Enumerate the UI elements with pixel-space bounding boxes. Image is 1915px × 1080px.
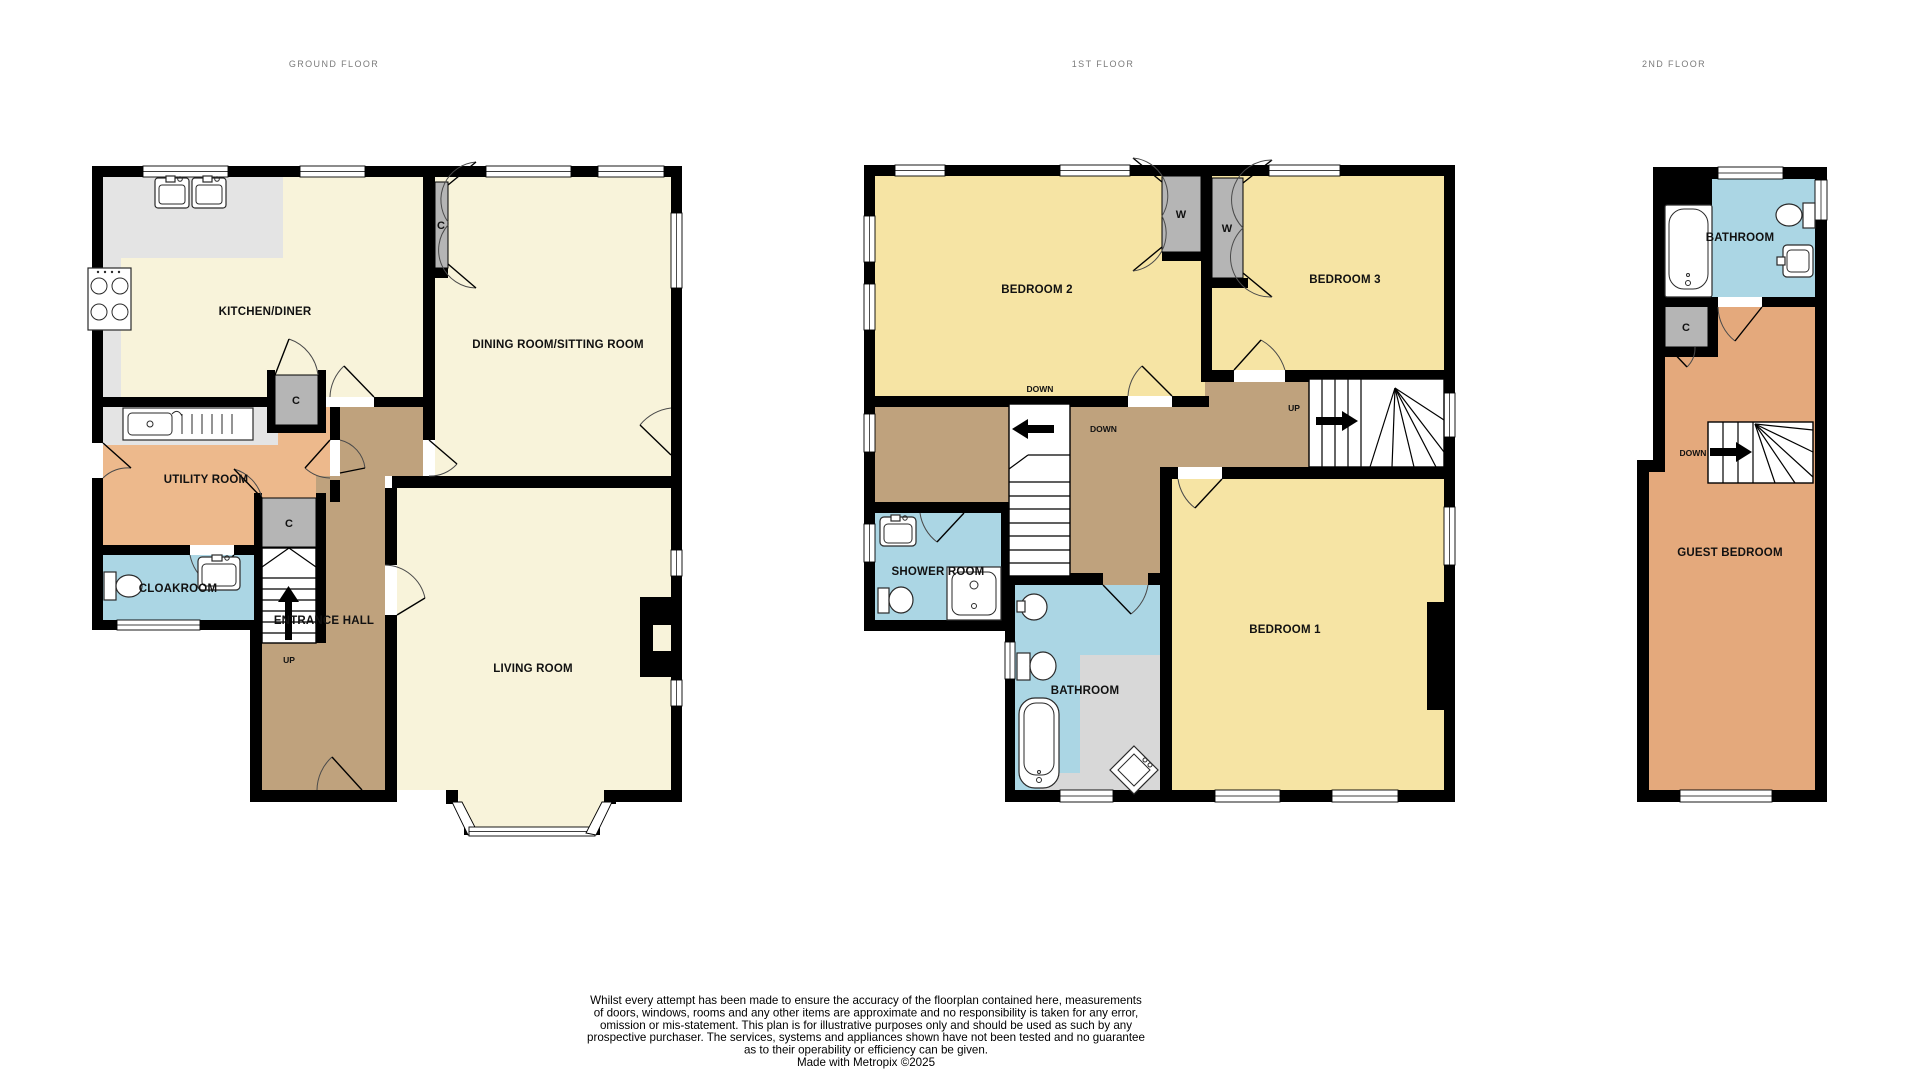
wardrobe-w1-label: W bbox=[1176, 209, 1187, 221]
utility-sink-icon bbox=[123, 408, 253, 440]
disclaimer-line-4: prospective purchaser. The services, sys… bbox=[587, 1031, 1145, 1044]
guest-floor-left bbox=[1649, 472, 1665, 790]
cupboard-c1-label: C bbox=[292, 395, 300, 407]
living-floor bbox=[397, 488, 671, 790]
second-floor-plan: BATHROOM GUEST BEDROOM C DOWN bbox=[1637, 167, 1827, 802]
bed3-floor bbox=[1212, 176, 1444, 370]
disclaimer-line-1: Whilst every attempt has been made to en… bbox=[590, 994, 1142, 1007]
second-floor-title: 2ND FLOOR bbox=[1642, 59, 1706, 69]
bed2-label: BEDROOM 2 bbox=[1001, 284, 1072, 296]
bathroom2-label: BATHROOM bbox=[1706, 232, 1774, 244]
second-floor-stairs bbox=[1708, 422, 1813, 483]
cloakroom-toilet-icon bbox=[104, 572, 142, 600]
up-label-1f: UP bbox=[1288, 403, 1300, 413]
dining-label: DINING ROOM/SITTING ROOM bbox=[472, 339, 644, 351]
cupboard-c3-label: C bbox=[437, 220, 445, 232]
hall-floor-upper bbox=[340, 407, 423, 476]
down-arrow-shaft-2f bbox=[1710, 448, 1738, 456]
dining-floor bbox=[435, 177, 671, 476]
bathroom2-basin-icon bbox=[1777, 245, 1813, 277]
first-floor-plan: BEDROOM 2 BEDROOM 3 BEDROOM 1 SHOWER ROO… bbox=[864, 158, 1455, 802]
bed1-label: BEDROOM 1 bbox=[1249, 624, 1321, 636]
wardrobe-w2-label: W bbox=[1222, 223, 1233, 235]
down-arrow-shaft bbox=[1026, 425, 1054, 433]
floorplan-canvas: GROUND FLOOR 1ST FLOOR 2ND FLOOR bbox=[0, 0, 1915, 1080]
disclaimer-line-3: omission or mis-statement. This plan is … bbox=[600, 1019, 1132, 1032]
floorplan-page: GROUND FLOOR 1ST FLOOR 2ND FLOOR bbox=[0, 0, 1915, 1080]
ground-floor-stairs bbox=[262, 548, 316, 643]
first-floor-stairs-up bbox=[1309, 379, 1444, 467]
ground-floor-plan: KITCHEN/DINER DINING ROOM/SITTING ROOM U… bbox=[88, 162, 682, 836]
gf-up-label: UP bbox=[283, 655, 295, 665]
first-floor-stairs-down bbox=[1009, 404, 1070, 576]
bathroom1-toilet-icon bbox=[1017, 652, 1056, 680]
cloakroom-label: CLOAKROOM bbox=[139, 583, 217, 595]
guest-label: GUEST BEDROOM bbox=[1677, 547, 1782, 559]
down-label-2f: DOWN bbox=[1680, 448, 1707, 458]
landing-lower bbox=[1070, 467, 1160, 585]
up-arrow-shaft-1f bbox=[1316, 417, 1344, 425]
utility-label: UTILITY ROOM bbox=[164, 474, 249, 486]
bathroom1-bath-icon bbox=[1019, 698, 1059, 788]
disclaimer-made-with: Made with Metropix ©2025 bbox=[797, 1056, 935, 1069]
hob-icon bbox=[88, 268, 131, 330]
bathroom1-label: BATHROOM bbox=[1051, 685, 1119, 697]
bathroom2-bath-icon bbox=[1665, 205, 1712, 297]
shower-basin-icon bbox=[880, 515, 916, 546]
hall-floor-main bbox=[316, 476, 385, 790]
first-floor-title: 1ST FLOOR bbox=[1072, 59, 1134, 69]
hall-floor-lower bbox=[262, 643, 316, 790]
shower-toilet-icon bbox=[878, 587, 913, 613]
bed3-label: BEDROOM 3 bbox=[1309, 274, 1380, 286]
hall-label: ENTRANCE HALL bbox=[274, 615, 374, 627]
landing-left bbox=[875, 407, 1009, 502]
bathroom2-toilet-icon bbox=[1776, 203, 1815, 228]
disclaimer-line-5: as to their operability or efficiency ca… bbox=[744, 1044, 988, 1057]
shower-label: SHOWER ROOM bbox=[892, 566, 985, 578]
cupboard-2f-label: C bbox=[1682, 322, 1690, 334]
down-label-arrow: DOWN bbox=[1090, 424, 1117, 434]
down-label-top: DOWN bbox=[1027, 384, 1054, 394]
disclaimer-line-2: of doors, windows, rooms and any other i… bbox=[594, 1006, 1139, 1019]
ground-floor-title: GROUND FLOOR bbox=[289, 59, 379, 69]
living-label: LIVING ROOM bbox=[493, 663, 573, 675]
kitchen-label: KITCHEN/DINER bbox=[219, 306, 312, 318]
cupboard-c2-label: C bbox=[285, 518, 293, 530]
disclaimer: Whilst every attempt has been made to en… bbox=[587, 994, 1145, 1069]
landing-mid bbox=[1070, 407, 1309, 467]
